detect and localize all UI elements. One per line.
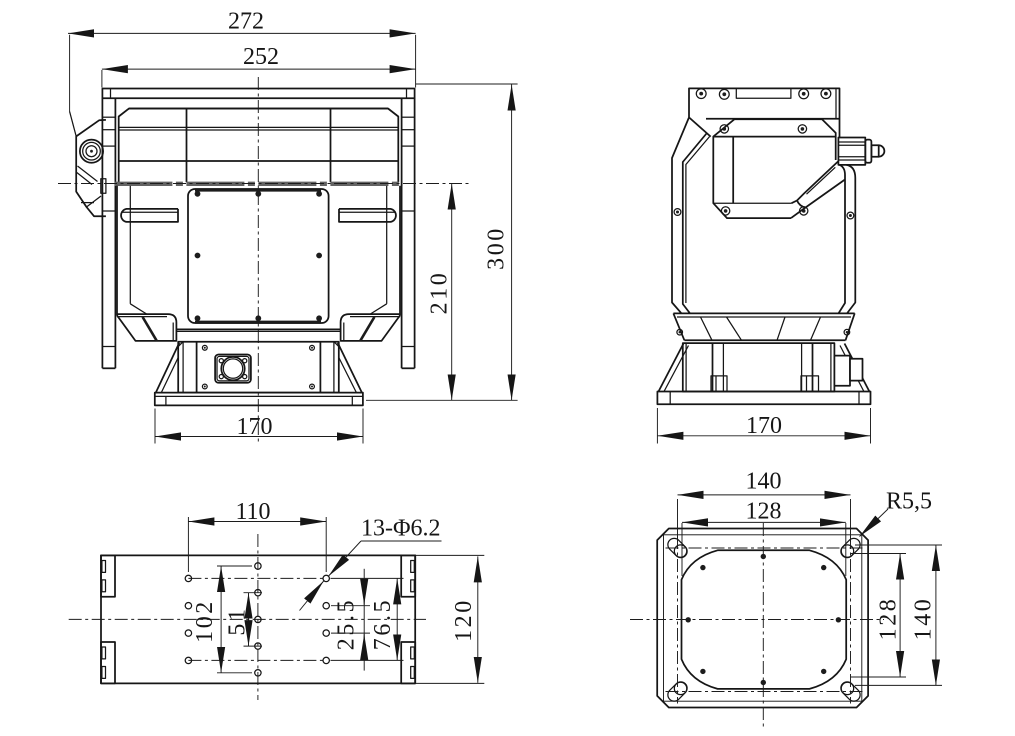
- svg-text:102: 102: [192, 599, 218, 643]
- svg-text:128: 128: [875, 597, 901, 641]
- svg-text:140: 140: [910, 597, 936, 641]
- svg-text:13-Φ6.2: 13-Φ6.2: [361, 516, 441, 542]
- svg-text:140: 140: [746, 468, 782, 494]
- svg-text:110: 110: [235, 499, 270, 525]
- svg-text:51: 51: [225, 606, 251, 635]
- svg-text:76.5: 76.5: [370, 598, 396, 650]
- svg-text:170: 170: [746, 413, 782, 439]
- svg-text:128: 128: [746, 499, 782, 525]
- svg-text:210: 210: [427, 271, 453, 315]
- svg-text:R5,5: R5,5: [886, 488, 932, 514]
- svg-text:300: 300: [484, 226, 510, 270]
- svg-text:25.5: 25.5: [333, 598, 359, 650]
- svg-text:170: 170: [237, 414, 273, 440]
- svg-text:272: 272: [228, 8, 264, 34]
- svg-text:120: 120: [451, 598, 477, 642]
- svg-text:252: 252: [243, 44, 279, 70]
